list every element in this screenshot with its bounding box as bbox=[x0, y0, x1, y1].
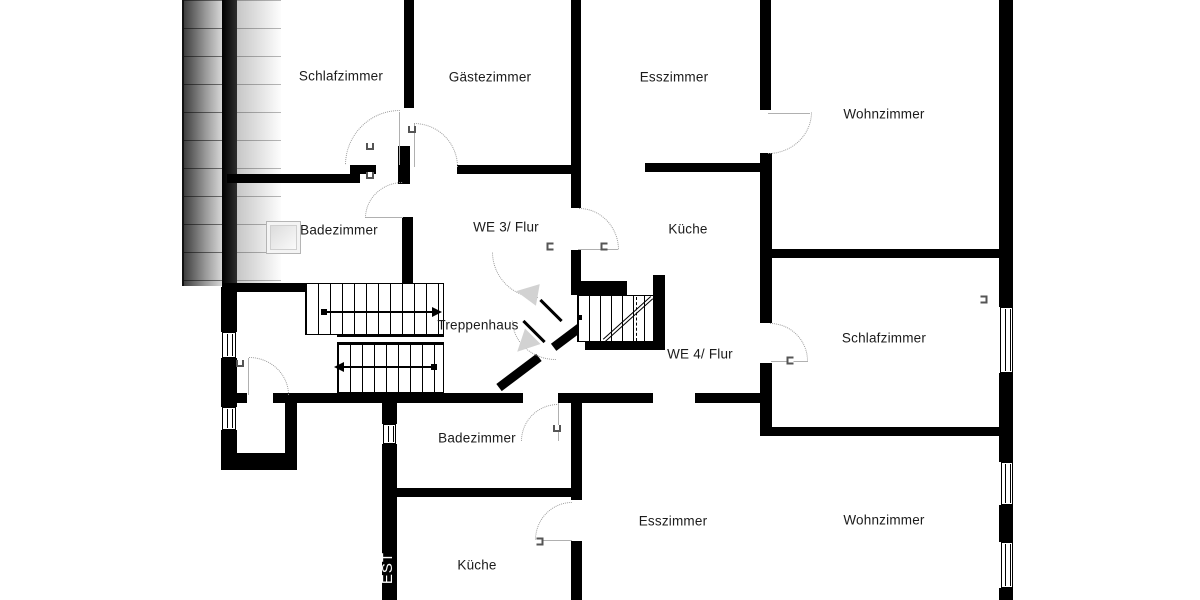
window-symbol bbox=[383, 424, 396, 444]
wall bbox=[653, 275, 665, 350]
entrance-direction-arrow bbox=[514, 280, 539, 305]
wall bbox=[645, 163, 765, 172]
small-stair-dot bbox=[577, 315, 582, 320]
roof-slope-hatch-dark bbox=[182, 0, 224, 286]
stair-arrow-head bbox=[432, 307, 442, 317]
room-label-we3-flur: WE 3/ Flur bbox=[473, 220, 539, 235]
door-arc bbox=[535, 502, 572, 540]
wall bbox=[999, 505, 1013, 542]
room-label-badezimmer-bottom: Badezimmer bbox=[438, 431, 516, 446]
wall bbox=[558, 393, 653, 403]
stair-direction-arrow bbox=[343, 366, 435, 368]
room-label-wohnzimmer-bottom: Wohnzimmer bbox=[843, 513, 924, 528]
stair-direction-arrow bbox=[325, 311, 435, 313]
wall bbox=[237, 393, 247, 403]
wall-direction-text: EST bbox=[380, 540, 396, 596]
door-leaf bbox=[558, 403, 559, 441]
room-label-kueche-top: Küche bbox=[668, 222, 707, 237]
room-label-esszimmer-bottom: Esszimmer bbox=[639, 514, 708, 529]
floorplan-canvas: Schlafzimmer Gästezimmer Esszimmer Wohnz… bbox=[0, 0, 1200, 600]
wall bbox=[404, 0, 414, 108]
door-arc bbox=[249, 357, 289, 395]
wall bbox=[285, 397, 297, 470]
room-label-schlafzimmer-top: Schlafzimmer bbox=[299, 69, 383, 84]
door-arc bbox=[770, 323, 808, 361]
room-label-we4-flur: WE 4/ Flur bbox=[667, 347, 733, 362]
window-symbol bbox=[222, 332, 236, 358]
wall bbox=[585, 341, 665, 350]
door-hinge-mark bbox=[981, 296, 988, 304]
wall bbox=[571, 403, 582, 500]
wall bbox=[760, 258, 772, 323]
stair-arrow-start-dot bbox=[431, 364, 437, 370]
room-label-gaestezimmer: Gästezimmer bbox=[449, 70, 531, 85]
room-label-esszimmer-top: Esszimmer bbox=[640, 70, 709, 85]
door-hinge-mark bbox=[236, 360, 244, 367]
door-arc bbox=[521, 404, 558, 441]
wall bbox=[999, 588, 1013, 600]
wall bbox=[762, 427, 1013, 436]
door-leaf bbox=[578, 249, 618, 250]
wall bbox=[402, 217, 413, 284]
sink-icon bbox=[266, 221, 301, 254]
wall bbox=[573, 281, 627, 295]
room-label-kueche-bottom: Küche bbox=[457, 558, 496, 573]
door-hinge-mark bbox=[553, 425, 561, 432]
door-hinge-mark bbox=[408, 126, 416, 133]
door-leaf bbox=[768, 113, 810, 114]
stair-arrow-head bbox=[334, 362, 344, 372]
wall bbox=[765, 249, 1013, 258]
wall bbox=[221, 358, 237, 407]
door-leaf bbox=[399, 112, 400, 165]
wall bbox=[760, 153, 772, 258]
door-hinge-mark bbox=[537, 538, 544, 546]
door-hinge-mark bbox=[787, 357, 794, 365]
room-label-treppenhaus: Treppenhaus bbox=[437, 318, 518, 333]
roof-slope-wall-band bbox=[222, 0, 237, 286]
door-leaf bbox=[366, 217, 403, 218]
wall bbox=[695, 393, 762, 403]
door-leaf-diagonal bbox=[539, 299, 562, 322]
door-arc bbox=[768, 112, 812, 154]
room-label-schlafzimmer-right: Schlafzimmer bbox=[842, 331, 926, 346]
wall bbox=[397, 488, 571, 497]
wall bbox=[999, 373, 1013, 462]
staircase-lower-flight bbox=[337, 344, 444, 393]
small-stair-dashed-line bbox=[636, 297, 637, 341]
window-symbol bbox=[1001, 542, 1013, 588]
door-hinge-mark bbox=[601, 243, 608, 251]
door-hinge-mark bbox=[366, 143, 374, 150]
door-arc bbox=[345, 110, 400, 165]
room-label-wohnzimmer-top: Wohnzimmer bbox=[843, 107, 924, 122]
window-symbol bbox=[1001, 462, 1013, 505]
staircase-landing-edge bbox=[337, 335, 444, 344]
door-hinge-mark bbox=[547, 243, 554, 251]
window-symbol bbox=[222, 407, 236, 430]
wall bbox=[571, 541, 582, 600]
room-label-badezimmer-top: Badezimmer bbox=[300, 223, 378, 238]
wall bbox=[227, 174, 357, 183]
wall bbox=[760, 0, 771, 110]
wall bbox=[382, 393, 397, 424]
window-symbol bbox=[1000, 307, 1013, 373]
door-arc bbox=[414, 123, 458, 167]
wall bbox=[571, 0, 581, 208]
wall bbox=[457, 165, 579, 174]
door-leaf bbox=[248, 358, 249, 395]
door-arc bbox=[365, 182, 403, 218]
wall bbox=[273, 393, 523, 403]
wall bbox=[221, 287, 237, 332]
door-arc bbox=[579, 208, 619, 250]
door-hinge-mark bbox=[366, 172, 374, 179]
wall bbox=[999, 0, 1013, 307]
stair-arrow-start-dot bbox=[321, 309, 327, 315]
